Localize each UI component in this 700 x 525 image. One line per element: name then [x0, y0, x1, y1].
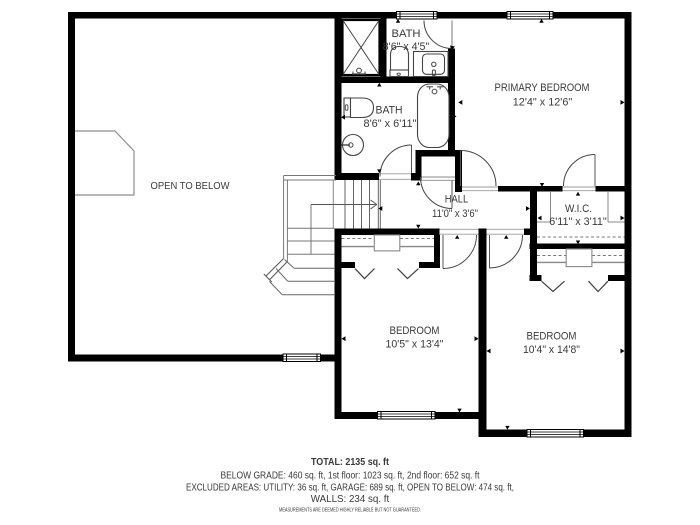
svg-text:OPEN TO BELOW: OPEN TO BELOW — [151, 180, 230, 192]
svg-text:8'6" x 6'11": 8'6" x 6'11" — [364, 118, 417, 130]
svg-text:W.I.C.: W.I.C. — [565, 203, 592, 215]
svg-text:11'0" x 3'6": 11'0" x 3'6" — [432, 208, 478, 220]
svg-text:BELOW GRADE: 460 sq. ft, 1st f: BELOW GRADE: 460 sq. ft, 1st floor: 1023… — [221, 471, 480, 482]
svg-text:10'4" x 14'8": 10'4" x 14'8" — [523, 344, 580, 356]
svg-text:BATH: BATH — [376, 105, 403, 117]
svg-text:PRIMARY BEDROOM: PRIMARY BEDROOM — [495, 82, 590, 94]
svg-text:BEDROOM: BEDROOM — [390, 325, 440, 337]
svg-text:TOTAL: 2135 sq. ft: TOTAL: 2135 sq. ft — [311, 457, 390, 468]
svg-text:BEDROOM: BEDROOM — [527, 331, 577, 343]
svg-text:8'6" x 4'5": 8'6" x 4'5" — [383, 41, 430, 53]
svg-text:12'4" x 12'6": 12'4" x 12'6" — [513, 97, 573, 109]
svg-text:BATH: BATH — [392, 28, 421, 40]
svg-text:10'5" x 13'4": 10'5" x 13'4" — [386, 339, 444, 351]
svg-text:MEASUREMENTS ARE DEEMED HIGHLY: MEASUREMENTS ARE DEEMED HIGHLY RELIABLE … — [279, 508, 421, 514]
svg-text:6'11" x 3'11": 6'11" x 3'11" — [549, 216, 607, 228]
svg-text:EXCLUDED AREAS: UTILITY: 36 sq: EXCLUDED AREAS: UTILITY: 36 sq. ft, GARA… — [186, 483, 514, 494]
svg-text:WALLS: 234 sq. ft: WALLS: 234 sq. ft — [311, 494, 390, 505]
svg-text:HALL: HALL — [445, 194, 469, 206]
